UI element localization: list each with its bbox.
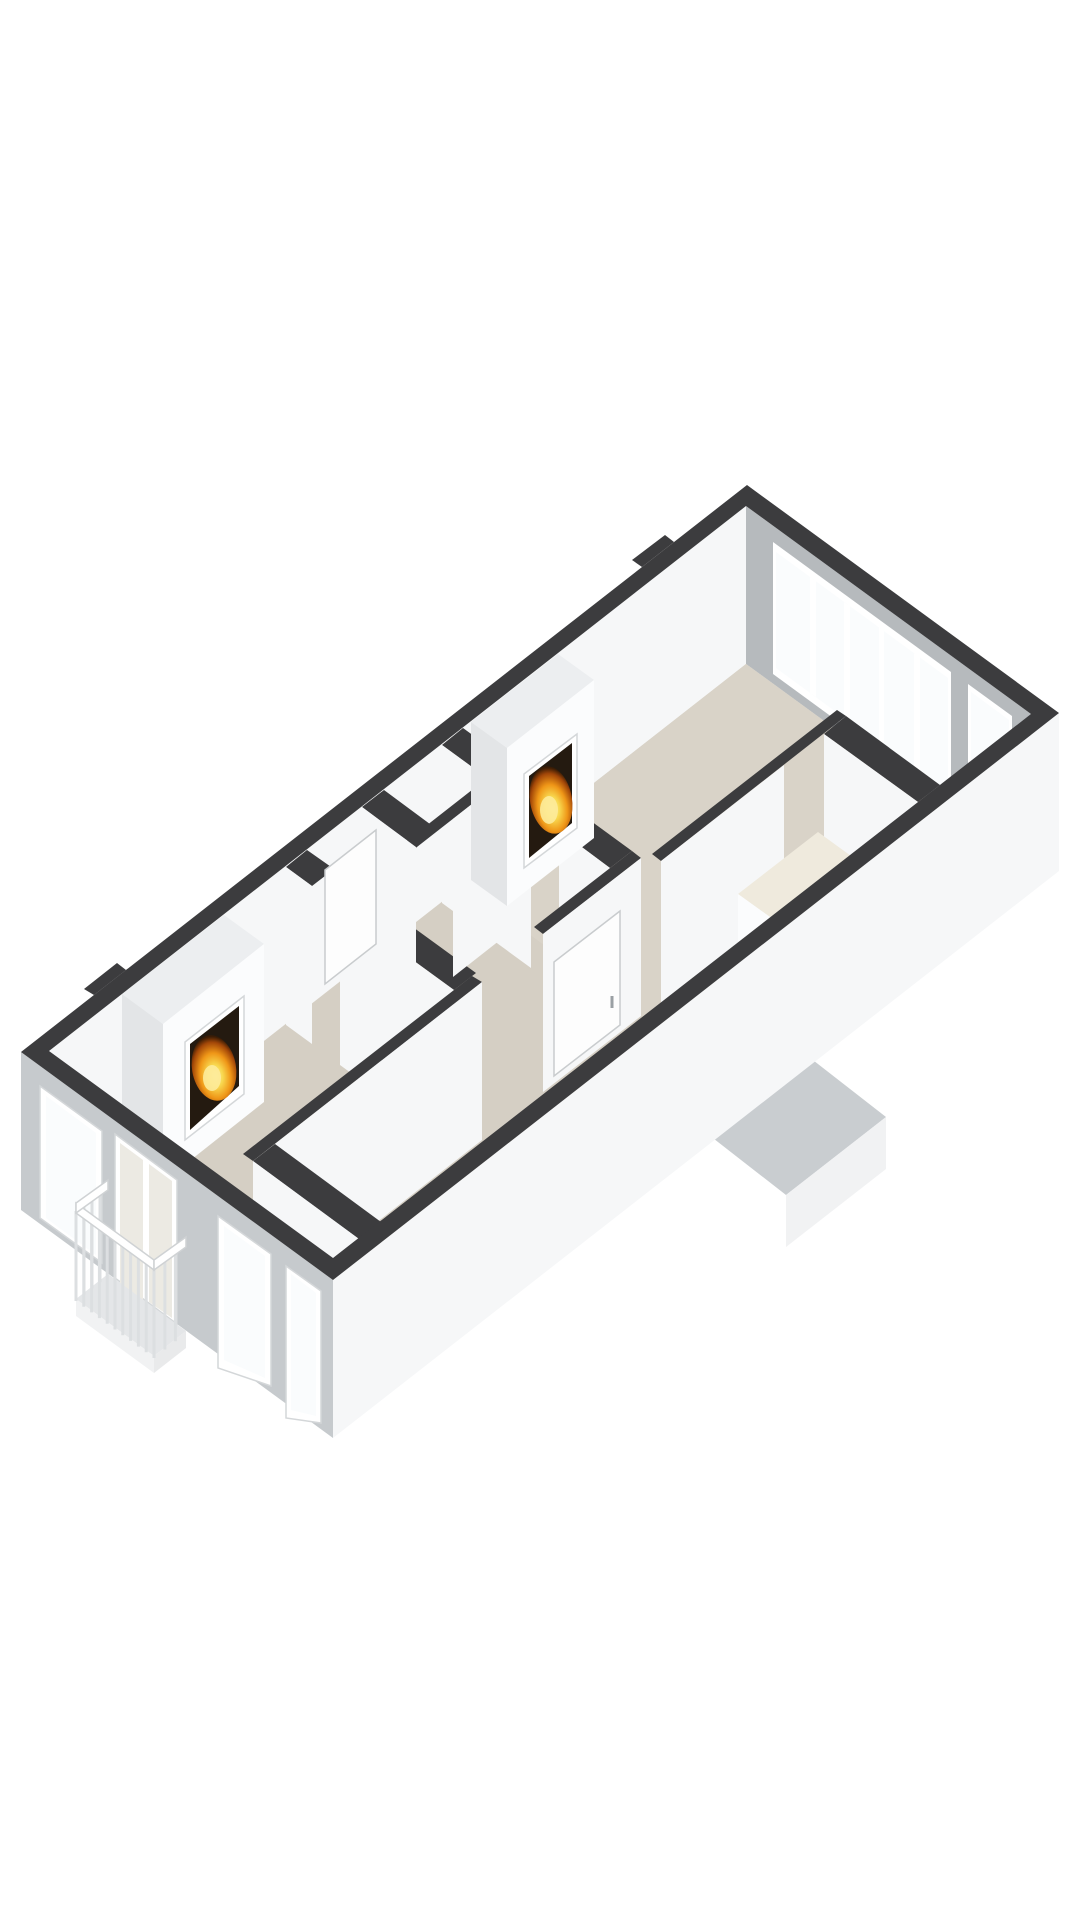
flame-core-icon (203, 1065, 221, 1091)
window-mullion (810, 577, 816, 697)
flame-core-icon (540, 796, 558, 824)
window-mullion (844, 602, 850, 722)
window-mullion (879, 627, 884, 747)
facade-window-3 (286, 1266, 321, 1423)
door-glass (149, 1164, 172, 1318)
wall-face (286, 867, 312, 1044)
floorplan-canvas (0, 0, 1080, 1920)
window-glass (291, 1274, 316, 1416)
window-mullion (914, 653, 920, 773)
chimney-side (471, 722, 507, 906)
